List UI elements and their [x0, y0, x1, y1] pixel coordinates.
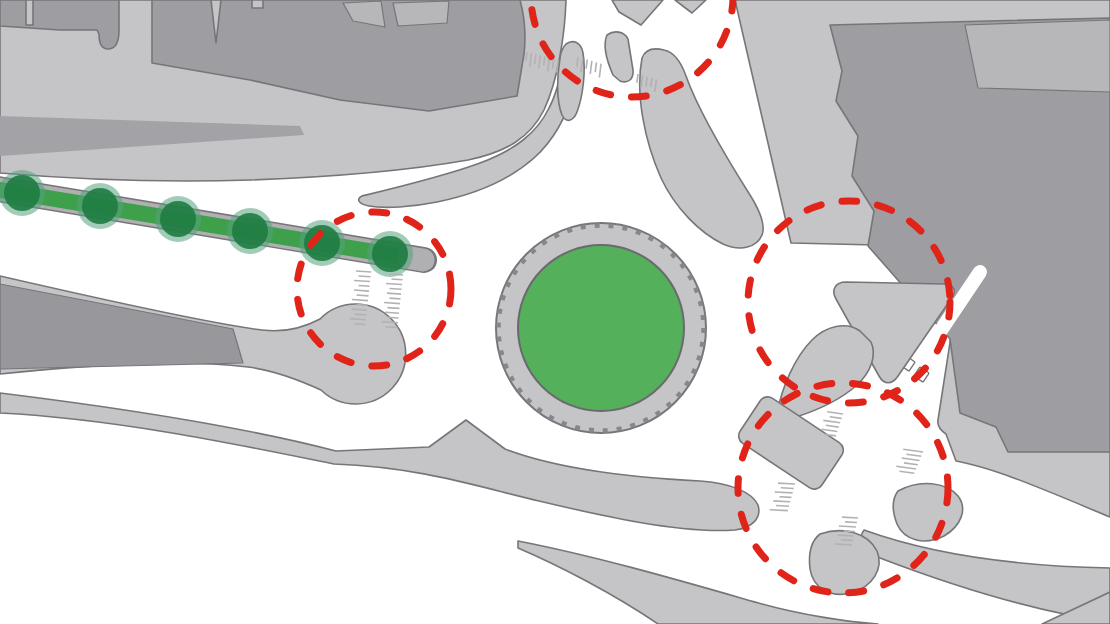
- crosswalk-tick: [842, 517, 858, 518]
- crosswalk-tick: [352, 309, 367, 310]
- crosswalk-tick: [835, 544, 852, 545]
- crosswalk-tick: [387, 293, 401, 294]
- crosswalk-tick: [838, 535, 854, 536]
- crosswalk-tick: [526, 52, 527, 61]
- crosswalk-tick: [386, 283, 402, 284]
- crosswalk-tick: [773, 501, 790, 502]
- crosswalk-tick: [382, 322, 398, 323]
- crosswalk-tick: [354, 280, 370, 281]
- tree-icon: [160, 201, 196, 237]
- crosswalk-tick: [354, 290, 369, 291]
- crosswalk-tick: [355, 314, 367, 315]
- crosswalk-tick: [388, 308, 400, 309]
- roundabout-plan-canvas: [0, 0, 1110, 624]
- crosswalk-tick: [844, 531, 855, 532]
- crosswalk-tick: [390, 288, 402, 289]
- building-roof-b: [393, 1, 449, 26]
- crosswalk-tick: [357, 295, 369, 296]
- tree-icon: [372, 236, 408, 272]
- crosswalk-tick: [839, 526, 856, 527]
- crosswalk-tick: [781, 488, 794, 489]
- crosswalk-tick: [359, 286, 370, 287]
- crosswalk-tick: [775, 492, 793, 493]
- tree-icon: [4, 175, 40, 211]
- crosswalk-tick: [586, 60, 587, 69]
- crosswalk-tick: [637, 74, 638, 83]
- crosswalk-tick: [651, 78, 652, 87]
- tree-icon: [82, 188, 118, 224]
- crosswalk-tick: [352, 300, 368, 301]
- crosswalk-tick: [390, 298, 401, 299]
- crosswalk-tick: [359, 276, 371, 277]
- crosswalk-tick: [350, 319, 366, 320]
- tree-icon: [232, 213, 268, 249]
- crosswalk-tick: [385, 312, 399, 313]
- northeast-building-annex: [965, 20, 1110, 92]
- crosswalk-tick: [779, 497, 791, 498]
- crosswalk-tick: [386, 327, 398, 328]
- crosswalk-tick: [356, 271, 371, 272]
- roundabout-green-center: [518, 245, 684, 411]
- crosswalk-tick: [770, 510, 788, 511]
- roundabout-plan-svg: [0, 0, 1110, 624]
- crosswalk-tick: [384, 303, 400, 304]
- crosswalk-tick: [845, 522, 857, 523]
- crosswalk-tick: [389, 274, 403, 275]
- crosswalk-tick: [544, 56, 545, 65]
- crosswalk-tick: [392, 279, 403, 280]
- crosswalk-tick: [388, 317, 399, 318]
- crosswalk-tick: [357, 305, 368, 306]
- crosswalk-tick: [355, 324, 366, 325]
- crosswalk-tick: [776, 506, 789, 507]
- crosswalk-tick: [841, 540, 853, 541]
- crosswalk-tick: [778, 483, 795, 484]
